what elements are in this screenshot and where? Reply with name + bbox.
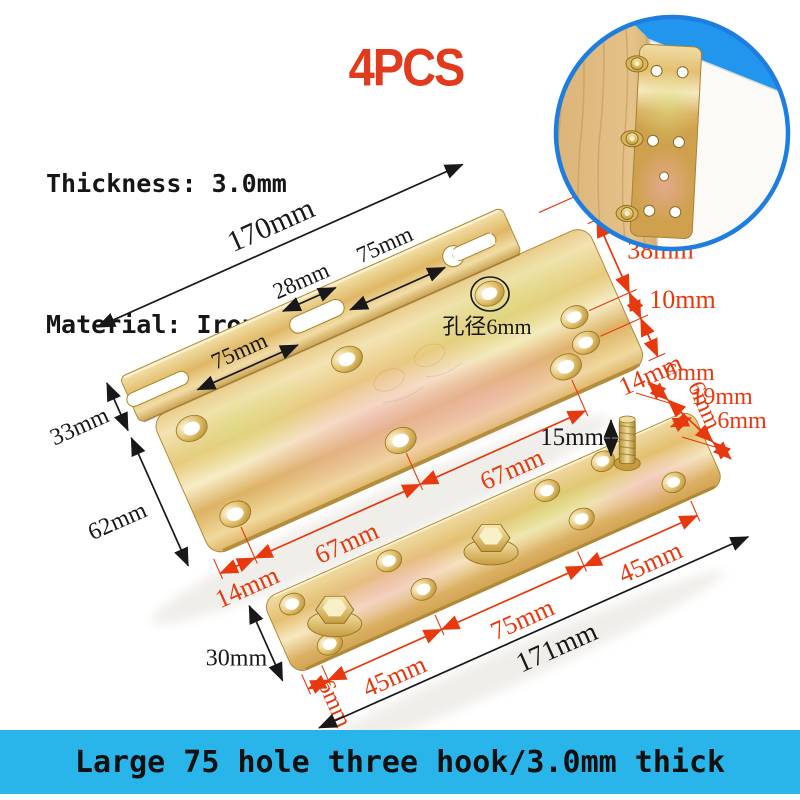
- hole-diameter-label: 孔径6mm: [442, 314, 531, 339]
- product-infographic: Thickness: 3.0mm Material: Iron 4PCS: [0, 0, 800, 800]
- dim-main-total-length: 170mm: [222, 191, 319, 258]
- dim-bar-top-margin: 6mm: [665, 360, 715, 386]
- dim-main-plate-depth: 62mm: [84, 497, 151, 546]
- caption-text: Large 75 hole three hook/3.0mm thick: [75, 745, 725, 780]
- dim-bar-width: 30mm: [206, 646, 268, 672]
- dim-stud-height: 15mm: [540, 420, 611, 456]
- dim-stud-height-label: 15mm: [540, 424, 604, 451]
- dim-bar-row-span: 19mm: [691, 384, 753, 410]
- dim-bar-bottom-margin: 6mm: [717, 408, 767, 434]
- diagram-canvas: 170mm 28mm 75mm 75mm 33mm 62mm: [0, 0, 800, 800]
- dim-main-right-span-2: 10mm: [649, 285, 715, 314]
- dim-bar-end-margin-left: 6mm: [312, 676, 356, 732]
- caption-banner: Large 75 hole three hook/3.0mm thick: [0, 730, 800, 794]
- dim-main-flange-height: 33mm: [46, 402, 113, 451]
